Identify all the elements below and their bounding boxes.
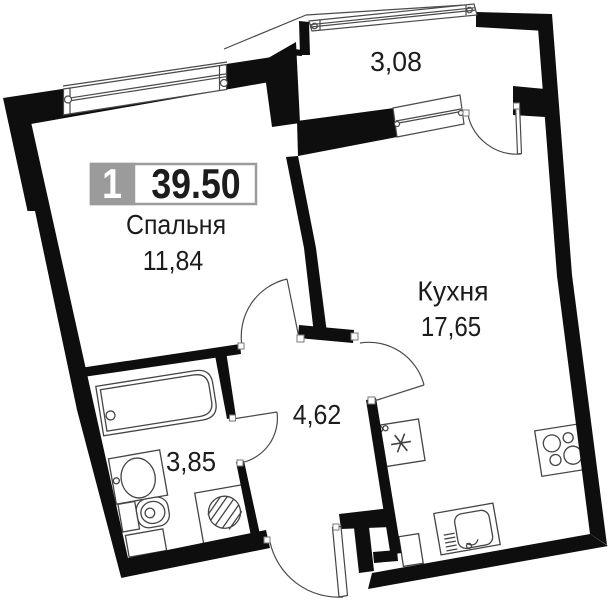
svg-text:3,08: 3,08 [370,45,422,77]
svg-text:4,62: 4,62 [293,399,341,431]
svg-text:39.50: 39.50 [151,161,240,207]
svg-text:17,65: 17,65 [421,310,481,342]
svg-text:3,85: 3,85 [166,446,216,477]
svg-text:Кухня: Кухня [417,275,488,307]
svg-text:Спальня: Спальня [126,209,226,241]
svg-text:11,84: 11,84 [143,245,204,277]
svg-text:1: 1 [102,161,122,207]
